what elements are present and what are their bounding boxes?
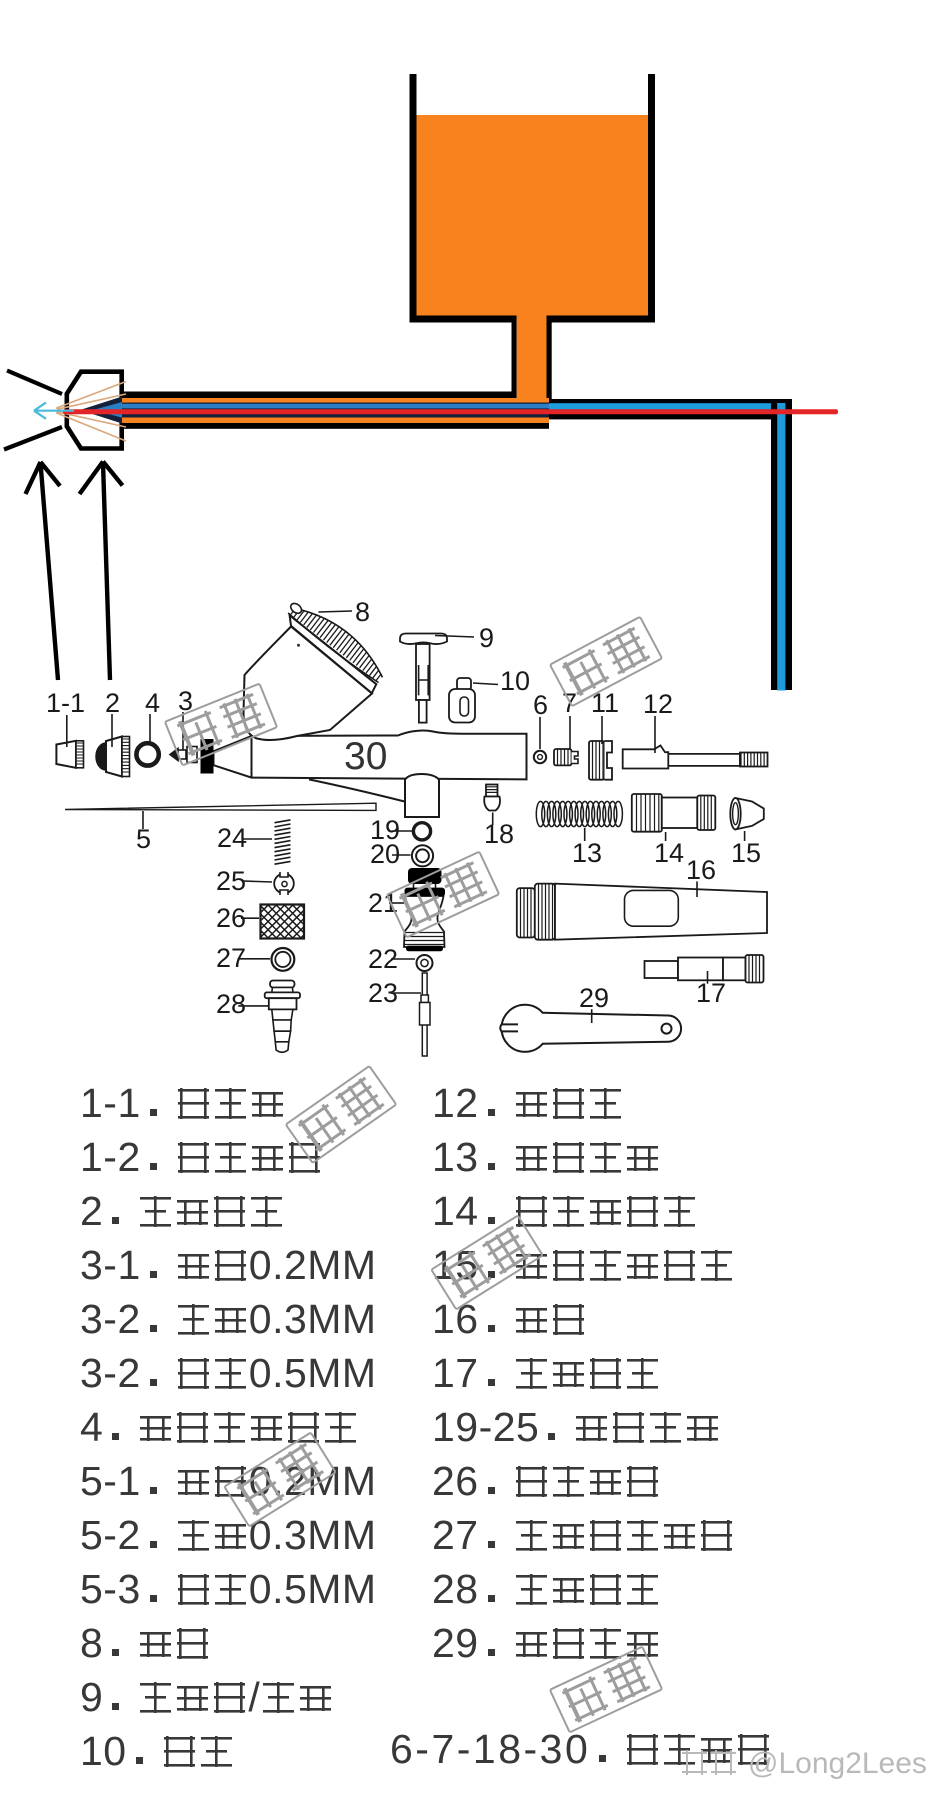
svg-text:20: 20 [370,839,400,869]
svg-text:2: 2 [105,688,120,718]
svg-text:27: 27 [216,943,246,973]
svg-text:29: 29 [579,983,609,1013]
svg-text:14: 14 [654,838,684,868]
svg-text:24: 24 [217,823,247,853]
svg-text:30: 30 [344,735,387,778]
svg-text:22: 22 [368,944,398,974]
svg-text:6: 6 [533,690,548,720]
svg-text:12: 12 [643,689,673,719]
svg-text:26: 26 [216,903,246,933]
svg-text:16: 16 [686,855,716,885]
svg-text:4: 4 [145,688,160,718]
svg-text:10: 10 [500,666,530,696]
svg-text:15: 15 [731,838,761,868]
svg-text:18: 18 [484,819,514,849]
svg-text:9: 9 [479,623,494,653]
svg-text:1-1: 1-1 [46,688,85,718]
svg-text:23: 23 [368,978,398,1008]
svg-text:13: 13 [572,838,602,868]
svg-text:28: 28 [216,989,246,1019]
svg-text:5: 5 [136,824,151,854]
svg-text:17: 17 [696,978,726,1008]
svg-text:8: 8 [355,597,370,627]
svg-text:25: 25 [216,866,246,896]
